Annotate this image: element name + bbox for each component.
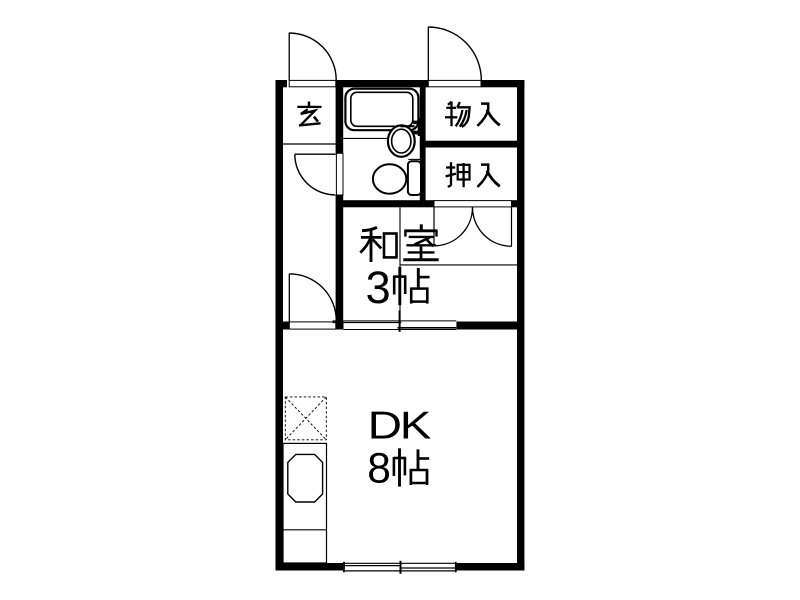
svg-text:K: K bbox=[400, 405, 432, 448]
svg-text:3: 3 bbox=[366, 262, 391, 313]
svg-text:D: D bbox=[368, 405, 402, 448]
svg-text:8: 8 bbox=[367, 446, 391, 493]
